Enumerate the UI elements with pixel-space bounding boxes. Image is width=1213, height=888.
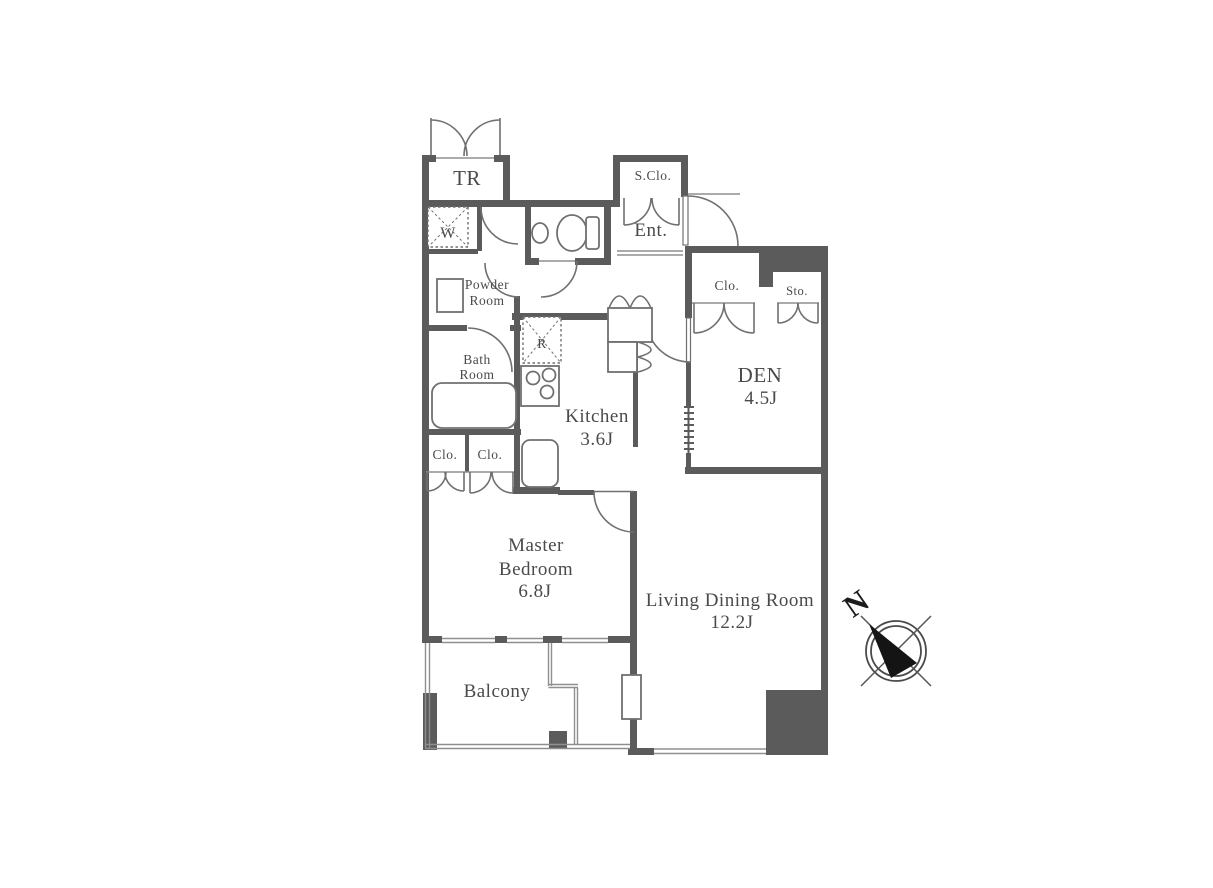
powder-sink bbox=[437, 279, 463, 312]
wall-powder-right bbox=[514, 296, 520, 330]
pantry-box bbox=[608, 308, 652, 342]
label-powder-2: Room bbox=[469, 293, 504, 308]
bifold-door bbox=[609, 296, 630, 308]
compass-north-label: N bbox=[837, 583, 875, 625]
label-bath-1: Bath bbox=[463, 352, 491, 367]
wall-powder-bottom-l bbox=[422, 325, 467, 331]
pillar-bottom-right bbox=[766, 690, 828, 755]
label-kitchen-area: 3.6J bbox=[580, 429, 613, 450]
toilet-sink bbox=[532, 223, 548, 243]
wall-toilet-left bbox=[525, 200, 531, 260]
wall-closet-right bbox=[514, 433, 520, 491]
label-bedroom-2: Bedroom bbox=[499, 559, 573, 580]
label-shoe-closet: S.Clo. bbox=[635, 168, 672, 183]
wall-ent-toilet bbox=[604, 200, 611, 265]
wall-powder-bottom-r bbox=[510, 325, 521, 331]
wall-bedroom-north bbox=[558, 490, 594, 495]
den-hatched-wall bbox=[684, 405, 694, 455]
closet-door-arc bbox=[445, 472, 464, 491]
bifold-door bbox=[630, 296, 651, 308]
label-entrance: Ent. bbox=[634, 220, 667, 241]
wall-tr-top-left bbox=[422, 155, 436, 162]
wall-toilet-bottom-r bbox=[575, 258, 611, 265]
toilet-tank bbox=[586, 217, 599, 249]
wall-closet-divider bbox=[465, 435, 469, 472]
closet-door-arc bbox=[470, 472, 491, 493]
stove-burner bbox=[527, 372, 540, 385]
floor-plan-svg: TR W S.Clo. Ent. Powder Room Bath Room R… bbox=[0, 0, 1213, 888]
wall-right bbox=[821, 246, 828, 755]
kitchen-sink bbox=[522, 440, 558, 487]
toilet-bowl bbox=[557, 215, 587, 251]
bifold-door bbox=[638, 357, 651, 372]
wall-bedroom-south-3 bbox=[543, 636, 562, 643]
stove-burner bbox=[543, 369, 556, 382]
wall-bath-bottom bbox=[422, 429, 521, 435]
label-balcony: Balcony bbox=[464, 681, 531, 702]
label-den-area: 4.5J bbox=[744, 388, 777, 409]
block-balcony bbox=[549, 731, 567, 749]
label-bedroom-1: Master bbox=[508, 535, 564, 556]
floor-plan-image: TR W S.Clo. Ent. Powder Room Bath Room R… bbox=[0, 0, 1213, 888]
wall-sclo-right bbox=[681, 155, 688, 197]
wall-bedroom-south-4 bbox=[608, 636, 637, 643]
den-door-leaf bbox=[687, 318, 691, 362]
wall-den-west-upper bbox=[686, 362, 691, 407]
label-den: DEN bbox=[738, 363, 783, 387]
label-trunk-room: TR bbox=[453, 166, 481, 190]
duct-shaft bbox=[622, 675, 641, 719]
label-closet-1: Clo. bbox=[433, 447, 458, 462]
tr-door-arc bbox=[431, 120, 467, 156]
entry-door-arc bbox=[688, 196, 738, 246]
label-living-dining-area: 12.2J bbox=[710, 612, 753, 633]
label-living-dining: Living Dining Room bbox=[646, 590, 814, 611]
closet-door-arc bbox=[492, 472, 513, 493]
bathtub bbox=[432, 383, 516, 428]
label-closet-den: Clo. bbox=[715, 278, 740, 293]
washer-door-arc bbox=[481, 207, 518, 244]
label-washer: W bbox=[440, 225, 456, 242]
wall-powder-top bbox=[422, 249, 478, 254]
wall-sto-dark-notch bbox=[759, 253, 773, 287]
wall-sclo-left bbox=[613, 155, 620, 207]
label-storage: Sto. bbox=[786, 284, 808, 298]
wall-hall-den bbox=[685, 250, 692, 318]
wall-left bbox=[422, 155, 429, 643]
stove-burner bbox=[541, 386, 554, 399]
tr-door-arc bbox=[464, 120, 500, 156]
compass: N bbox=[837, 583, 931, 686]
storage-door-arc bbox=[798, 303, 818, 323]
wall-bedroom-south-1 bbox=[422, 636, 442, 643]
label-powder-1: Powder bbox=[465, 277, 509, 292]
closet-door-arc bbox=[694, 303, 724, 333]
label-bedroom-area: 6.8J bbox=[518, 581, 551, 602]
closet-door-arc bbox=[724, 303, 754, 333]
wall-tr-right bbox=[503, 155, 510, 207]
wall-bedroom-south-2 bbox=[495, 636, 507, 643]
label-closet-2: Clo. bbox=[478, 447, 503, 462]
label-bath-2: Room bbox=[459, 367, 494, 382]
toilet-door-arc bbox=[541, 261, 577, 297]
label-kitchen: Kitchen bbox=[565, 406, 629, 427]
wall-sclo-top bbox=[613, 155, 688, 162]
label-refrigerator: R bbox=[537, 336, 547, 351]
wall-den-west-lower bbox=[686, 453, 691, 469]
closet-door-arc bbox=[427, 472, 446, 491]
storage-door-arc bbox=[778, 303, 798, 323]
wall-kitchen-bottom bbox=[513, 487, 560, 494]
entry-door-leaf bbox=[683, 196, 688, 245]
wall-den-bottom bbox=[685, 467, 828, 474]
bifold-door bbox=[638, 342, 651, 357]
wall-top-right bbox=[685, 246, 828, 253]
wall-toilet-top bbox=[422, 200, 620, 207]
wall-ldk-bottom-stub bbox=[628, 748, 654, 755]
pantry-box bbox=[608, 342, 637, 372]
bedroom-door-arc bbox=[594, 492, 634, 532]
